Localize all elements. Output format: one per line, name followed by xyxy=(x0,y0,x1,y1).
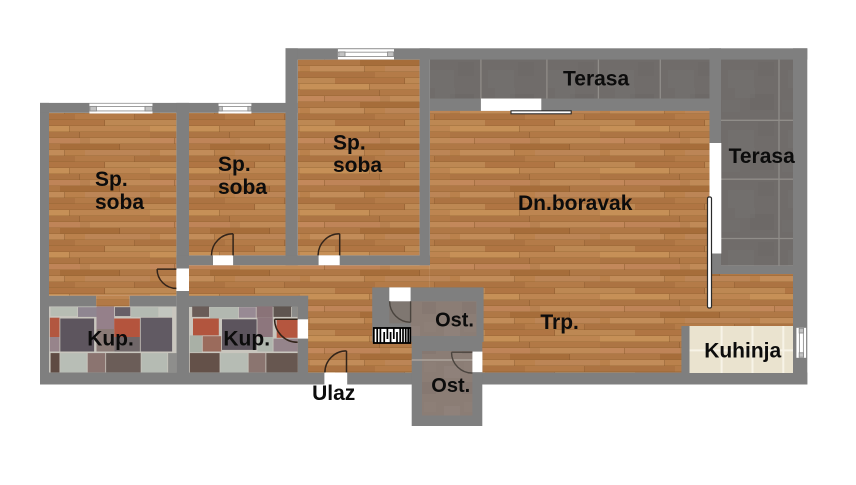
svg-text:Ost.: Ost. xyxy=(435,310,474,332)
svg-text:Sp.: Sp. xyxy=(333,131,366,154)
svg-text:Kup.: Kup. xyxy=(87,328,134,351)
svg-text:Dn.boravak: Dn.boravak xyxy=(518,192,633,215)
svg-text:soba: soba xyxy=(333,154,382,177)
svg-text:Kup.: Kup. xyxy=(223,328,270,351)
svg-text:Ulaz: Ulaz xyxy=(312,382,355,405)
svg-text:soba: soba xyxy=(95,191,144,214)
svg-text:Ost.: Ost. xyxy=(431,375,470,397)
svg-text:Terasa: Terasa xyxy=(563,68,629,91)
svg-text:Sp.: Sp. xyxy=(95,168,128,191)
svg-text:Sp.: Sp. xyxy=(218,153,251,176)
svg-text:Terasa: Terasa xyxy=(729,145,795,168)
svg-text:Trp.: Trp. xyxy=(540,311,579,334)
svg-text:Kuhinja: Kuhinja xyxy=(704,339,781,362)
svg-text:soba: soba xyxy=(218,176,267,199)
